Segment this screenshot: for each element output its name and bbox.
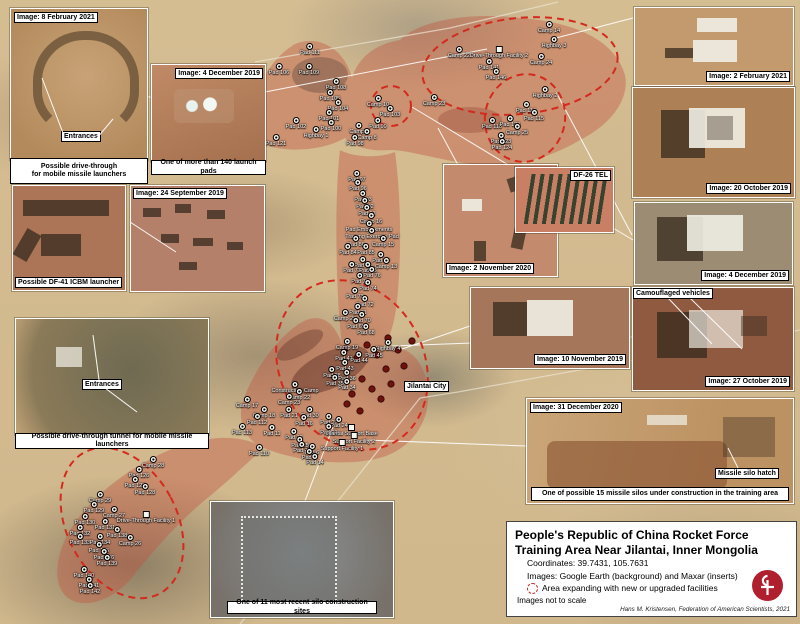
- map-label-text: Pad 139: [97, 561, 118, 567]
- tel-vehicles-feature: [521, 174, 607, 224]
- map-label: Pad 110: [249, 444, 269, 457]
- inset-df26-tel: DF-26 TEL: [515, 167, 614, 233]
- map-label: Camp 23: [423, 94, 445, 107]
- fas-logo-glyph: [752, 570, 783, 601]
- pad-marker-icon: [256, 444, 263, 451]
- facility-marker-icon: [495, 46, 502, 53]
- pad-marker-icon: [260, 406, 267, 413]
- inset-date-label: Image: 10 November 2019: [534, 354, 626, 365]
- satellite-photo: [633, 88, 794, 197]
- map-label: Camp 26: [119, 534, 141, 547]
- inset-feb2021: Image: 2 February 2021: [634, 7, 794, 86]
- pad-marker-icon: [354, 170, 361, 177]
- map-label-text: Pad 121: [266, 141, 287, 147]
- pad-marker-icon: [97, 533, 104, 540]
- building-feature: [462, 199, 482, 211]
- map-label: Pad 142: [80, 582, 101, 595]
- pad-marker-icon: [306, 63, 313, 70]
- pad-marker-icon: [353, 235, 360, 242]
- inset-dec2020: Image: 31 December 2020 Missile silo hat…: [526, 398, 794, 504]
- building-feature: [23, 200, 109, 216]
- caption-line: for mobile missile launchers: [32, 171, 127, 180]
- map-label: Pad 34: [338, 378, 355, 391]
- map-label: Pad 98: [346, 134, 363, 147]
- map-label: Pad 133: [70, 533, 91, 546]
- pad-marker-icon: [375, 117, 382, 124]
- inset-caption-label: Possible DF-41 ICBM launcher: [15, 277, 122, 288]
- pad-marker-icon: [312, 453, 319, 460]
- map-label-text: Pad 146: [486, 75, 507, 81]
- pad-marker-icon: [313, 126, 320, 133]
- pad-marker-icon: [326, 109, 333, 116]
- map-label: Pad 11: [263, 424, 280, 437]
- map-label-text: Camp 23: [423, 101, 445, 107]
- map-label-text: Drive-Through Facility 1: [117, 518, 175, 524]
- building-feature: [647, 415, 687, 425]
- pad-marker-icon: [371, 346, 378, 353]
- pad-marker-icon: [493, 68, 500, 75]
- pad-marker-icon: [273, 134, 280, 141]
- legend-label: Area expanding with new or upgraded faci…: [542, 582, 718, 595]
- map-label: Pad 106: [269, 63, 290, 76]
- inset-date-label: Image: 2 November 2020: [446, 263, 534, 274]
- map-label: Drive-Through Facility 1: [117, 511, 175, 524]
- building-feature: [474, 241, 486, 261]
- satellite-photo: [633, 288, 793, 390]
- inset-date-label: Image: 24 September 2019: [133, 188, 227, 199]
- pad-marker-icon: [382, 257, 389, 264]
- scale-note: Images not to scale: [517, 595, 788, 606]
- pad-marker-icon: [336, 416, 343, 423]
- vehicle-feature: [175, 204, 191, 213]
- map-label-text: Pad 11: [263, 431, 280, 437]
- satellite-photo: [16, 319, 208, 434]
- map-label-text: Pad 14: [306, 460, 323, 466]
- building-feature: [41, 234, 81, 256]
- pad-marker-icon: [352, 134, 359, 141]
- pad-marker-icon: [285, 393, 292, 400]
- launch-pad-feature: [174, 89, 234, 123]
- map-label: Pad 121: [266, 134, 287, 147]
- map-label-text: Pad 34: [338, 385, 355, 391]
- map-title: People's Republic of China Rocket Force …: [515, 528, 788, 557]
- map-label: Pad 128: [135, 483, 156, 496]
- pad-marker-icon: [385, 339, 392, 346]
- pad-marker-icon: [291, 428, 298, 435]
- construction-site-feature: [241, 516, 337, 604]
- map-label-text: Pad 142: [80, 589, 101, 595]
- pad-marker-icon: [363, 128, 370, 135]
- pad-marker-icon: [126, 534, 133, 541]
- map-label: Support Facility 1: [321, 439, 364, 452]
- facility-marker-icon: [348, 424, 355, 431]
- map-label-text: Camp 14: [538, 28, 560, 34]
- building-feature: [689, 310, 743, 348]
- pad-marker-icon: [82, 513, 89, 520]
- pad-marker-icon: [368, 227, 375, 234]
- map-label-text: Camp 15: [372, 242, 394, 248]
- building-feature: [693, 40, 737, 62]
- pad-marker-icon: [379, 235, 386, 242]
- inset-date-label: Image: 2 February 2021: [706, 71, 790, 82]
- map-label-text: Pad 106: [269, 70, 290, 76]
- map-label-text: Pad 113: [232, 430, 252, 436]
- pad-marker-icon: [329, 366, 336, 373]
- map-label-text: Pad 133: [70, 540, 91, 546]
- inset-date-label: Image: 4 December 2019: [175, 68, 263, 79]
- pad-marker-icon: [132, 476, 139, 483]
- facility-marker-icon: [142, 511, 149, 518]
- pad-marker-icon: [499, 138, 506, 145]
- pad-marker-icon: [387, 105, 394, 112]
- map-label: Camp 14: [538, 21, 560, 34]
- pad-marker-icon: [333, 78, 340, 85]
- inset-silo-construction: One of 11 most recent silo construction …: [210, 501, 394, 618]
- silo-site-feature: [723, 417, 775, 457]
- pad-marker-icon: [341, 349, 348, 356]
- facility-marker-icon: [351, 432, 358, 439]
- pad-marker-icon: [136, 466, 143, 473]
- pad-marker-icon: [276, 63, 283, 70]
- map-label: Pad 113: [232, 423, 252, 436]
- pad-marker-icon: [367, 212, 374, 219]
- map-label-text: Highbay 2: [533, 93, 558, 99]
- map-label-text: Support Facility 1: [321, 446, 364, 452]
- inset-drive-through-feb2021: Image: 8 February 2021 Entrances: [10, 8, 148, 160]
- entrances-label: Entrances: [82, 379, 122, 390]
- pad-marker-icon: [366, 220, 373, 227]
- caption-line: One of 11 most recent silo construction …: [228, 599, 376, 616]
- pad-marker-icon: [430, 94, 437, 101]
- pad-marker-icon: [286, 406, 293, 413]
- map-label-text: Pad 124: [492, 145, 513, 151]
- map-label-text: Pad 16: [295, 421, 312, 427]
- pad-marker-icon: [328, 119, 335, 126]
- pad-marker-icon: [523, 101, 530, 108]
- map-label: Pad 14: [306, 453, 323, 466]
- map-label: Highbay 1: [304, 126, 329, 139]
- pad-marker-icon: [77, 533, 84, 540]
- pad-marker-icon: [360, 190, 367, 197]
- inset-df41-launcher: Possible DF-41 ICBM launcher: [12, 185, 126, 291]
- pad-marker-icon: [369, 266, 376, 273]
- pad-marker-icon: [239, 423, 246, 430]
- title-box: People's Republic of China Rocket Force …: [506, 521, 797, 617]
- pad-marker-icon: [542, 86, 549, 93]
- vehicle-feature: [227, 242, 243, 250]
- pad-marker-icon: [363, 243, 370, 250]
- inset-date-label: Image: 4 December 2019: [701, 270, 789, 281]
- inset-date-label: Image: 27 October 2019: [705, 376, 790, 387]
- pad-marker-icon: [513, 123, 520, 130]
- pad-marker-icon: [77, 524, 84, 531]
- map-label-text: Pad 111: [300, 50, 320, 56]
- map-label: Highbay 3: [542, 36, 567, 49]
- map-label: Pad 84: [339, 243, 356, 256]
- inset-date-label: Image: 8 February 2021: [14, 12, 98, 23]
- pad-marker-icon: [142, 483, 149, 490]
- camouflaged-vehicles-label: Camouflaged vehicles: [633, 288, 713, 299]
- pad-marker-icon: [355, 179, 362, 186]
- inset-sep2019: Image: 24 September 2019: [130, 185, 265, 292]
- building-feature: [697, 18, 737, 32]
- map-label-text: Pad 115: [524, 116, 544, 122]
- caption-line: Possible drive-through: [41, 163, 117, 172]
- pad-marker-icon: [374, 95, 381, 102]
- map-label-text: Highbay 3: [542, 43, 567, 49]
- pad-marker-icon: [102, 518, 109, 525]
- vehicle-feature: [179, 262, 197, 270]
- expansion-area-legend-icon: [527, 583, 538, 594]
- inset-caption: One of more than 140 launch pads: [151, 160, 266, 175]
- fas-logo-icon: [752, 570, 783, 601]
- excavation-feature: [547, 441, 727, 489]
- building-feature: [527, 300, 573, 336]
- pad-marker-icon: [344, 378, 351, 385]
- inset-oct2019-b: Image: 27 October 2019: [632, 287, 794, 391]
- pad-marker-icon: [91, 501, 98, 508]
- df26-tel-label: DF-26 TEL: [570, 170, 611, 181]
- pad-marker-icon: [104, 554, 111, 561]
- map-label-text: Pad 98: [346, 141, 363, 147]
- satellite-photo: [152, 65, 265, 161]
- map-label-text: Camp 24: [530, 60, 552, 66]
- inset-caption: Possible drive-through tunnel for mobile…: [15, 433, 209, 449]
- building-shadow-feature: [665, 48, 693, 58]
- pad-marker-icon: [343, 338, 350, 345]
- building-feature: [13, 228, 41, 262]
- pad-marker-icon: [293, 117, 300, 124]
- map-label: Pad 139: [97, 554, 118, 567]
- map-label: Camp 23: [278, 393, 300, 406]
- pad-feature: [56, 347, 82, 367]
- map-label-text: Highbay 1: [304, 133, 329, 139]
- pad-marker-icon: [455, 46, 462, 53]
- pad-marker-icon: [507, 115, 514, 122]
- pad-marker-icon: [291, 381, 298, 388]
- inset-date-label: Image: 20 October 2019: [706, 183, 791, 194]
- map-label: Camp 15: [372, 235, 394, 248]
- jilantai-city-label: Jilantai City: [404, 381, 449, 392]
- vehicle-feature: [193, 238, 213, 246]
- pad-marker-icon: [341, 309, 348, 316]
- pad-marker-icon: [364, 204, 371, 211]
- building-shadow-feature: [493, 302, 527, 336]
- map-label: Pad 115: [524, 109, 544, 122]
- map-label: Pad 146: [486, 68, 507, 81]
- entrances-label: Entrances: [61, 131, 101, 142]
- pad-marker-icon: [352, 287, 359, 294]
- pad-marker-icon: [344, 369, 351, 376]
- inset-dec2019-b: Image: 4 December 2019: [634, 202, 793, 285]
- pad-marker-icon: [269, 424, 276, 431]
- imagery-credit-text: Images: Google Earth (background) and Ma…: [527, 570, 788, 583]
- map-label: Pad 16: [295, 414, 312, 427]
- pad-marker-icon: [342, 359, 349, 366]
- pad-marker-icon: [114, 526, 121, 533]
- map-label: Camp 24: [530, 53, 552, 66]
- inset-caption: One of possible 15 missile silos under c…: [531, 487, 789, 501]
- author-credit: Hans M. Kristensen, Federation of Americ…: [620, 606, 790, 613]
- caption-line: One of possible 15 missile silos under c…: [542, 490, 778, 499]
- pad-marker-icon: [81, 566, 88, 573]
- camouflaged-vehicles-feature: [741, 316, 767, 336]
- map-label: Highbay 2: [533, 86, 558, 99]
- pad-marker-icon: [307, 43, 314, 50]
- map-label-text: Pad 128: [135, 490, 156, 496]
- map-label: Camp 22: [448, 46, 470, 59]
- building-detail-feature: [707, 116, 733, 140]
- pad-marker-icon: [301, 414, 308, 421]
- map-label: Pad 124: [492, 138, 513, 151]
- pad-marker-icon: [363, 323, 370, 330]
- pad-marker-icon: [96, 541, 103, 548]
- pad-marker-icon: [243, 396, 250, 403]
- caption-line: One of more than 140 launch pads: [152, 159, 265, 176]
- coordinates-text: Coordinates: 39.7431, 105.7631: [527, 557, 788, 570]
- annotated-satellite-map: Pad 111Pad 106Pad 109Pad 108Pad 105Pad 1…: [0, 0, 800, 624]
- satellite-photo: [13, 186, 125, 290]
- inset-nov2019: Image: 10 November 2019: [470, 287, 630, 369]
- building-feature: [687, 215, 743, 251]
- vehicle-feature: [207, 210, 225, 219]
- pad-marker-icon: [365, 279, 372, 286]
- pad-marker-icon: [307, 406, 314, 413]
- map-label-text: Camp 26: [119, 541, 141, 547]
- pad-marker-icon: [545, 21, 552, 28]
- caption-line: Possible drive-through tunnel for mobile…: [16, 433, 208, 450]
- inset-oct2019-a: Image: 20 October 2019: [632, 87, 795, 198]
- map-label: Pad 45: [365, 346, 382, 359]
- map-label-text: Pad 110: [249, 451, 269, 457]
- inset-caption: Possible drive-through for mobile missil…: [10, 158, 148, 184]
- pad-marker-icon: [345, 243, 352, 250]
- pad-marker-icon: [335, 99, 342, 106]
- satellite-photo: [131, 186, 264, 291]
- missile-silo-hatch-label: Missile silo hatch: [715, 468, 779, 479]
- map-label: Pad 109: [299, 63, 320, 76]
- inset-date-label: Image: 31 December 2020: [530, 402, 622, 413]
- facility-marker-icon: [339, 439, 346, 446]
- map-label: Pad 68: [357, 323, 374, 336]
- pad-marker-icon: [149, 456, 156, 463]
- pad-marker-icon: [486, 58, 493, 65]
- pad-marker-icon: [551, 36, 558, 43]
- pad-marker-icon: [356, 351, 363, 358]
- vehicle-feature: [143, 208, 161, 217]
- inset-tunnel: Entrances: [15, 318, 209, 435]
- pad-marker-icon: [87, 582, 94, 589]
- pad-marker-icon: [96, 491, 103, 498]
- inset-caption: One of 11 most recent silo construction …: [227, 601, 377, 614]
- pad-marker-icon: [531, 109, 538, 116]
- pad-marker-icon: [254, 413, 261, 420]
- map-label-text: Camp 22: [448, 53, 470, 59]
- pad-marker-icon: [537, 53, 544, 60]
- pad-marker-icon: [362, 295, 369, 302]
- map-label: Pad 111: [300, 43, 320, 56]
- pad-marker-icon: [357, 272, 364, 279]
- map-label-text: Pad 68: [357, 330, 374, 336]
- map-label-text: Pad 109: [299, 70, 320, 76]
- pad-marker-icon: [327, 89, 334, 96]
- vehicle-feature: [161, 234, 179, 243]
- inset-launch-pad-dec2019: Image: 4 December 2019: [151, 64, 266, 162]
- legend-row: Area expanding with new or upgraded faci…: [527, 582, 788, 595]
- pad-marker-icon: [489, 117, 496, 124]
- pad-marker-icon: [362, 197, 369, 204]
- map-label-text: Pad 45: [365, 353, 382, 359]
- tunnel-loop-feature: [33, 31, 139, 135]
- pad-marker-icon: [349, 261, 356, 268]
